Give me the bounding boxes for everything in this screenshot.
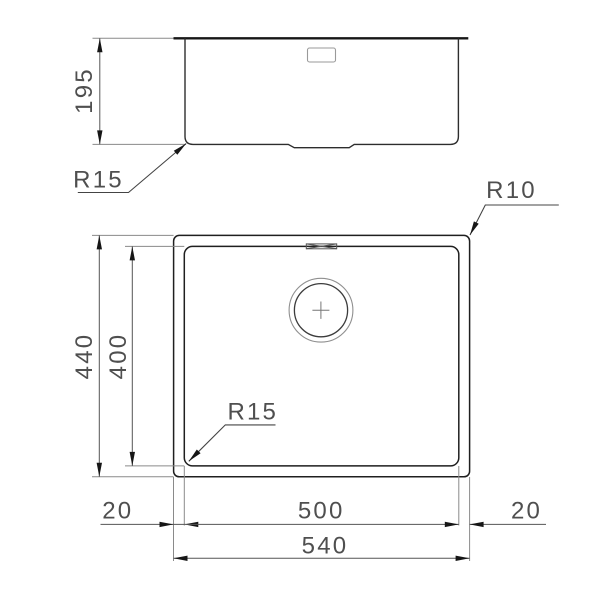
svg-text:400: 400	[105, 333, 132, 380]
svg-text:440: 440	[71, 333, 98, 380]
svg-text:20: 20	[511, 498, 542, 525]
svg-text:20: 20	[102, 498, 133, 525]
svg-text:540: 540	[302, 533, 349, 560]
svg-text:500: 500	[298, 498, 345, 525]
svg-text:195: 195	[71, 67, 98, 114]
svg-text:R10: R10	[486, 177, 537, 204]
svg-text:R15: R15	[73, 167, 124, 194]
svg-text:R15: R15	[227, 399, 278, 426]
